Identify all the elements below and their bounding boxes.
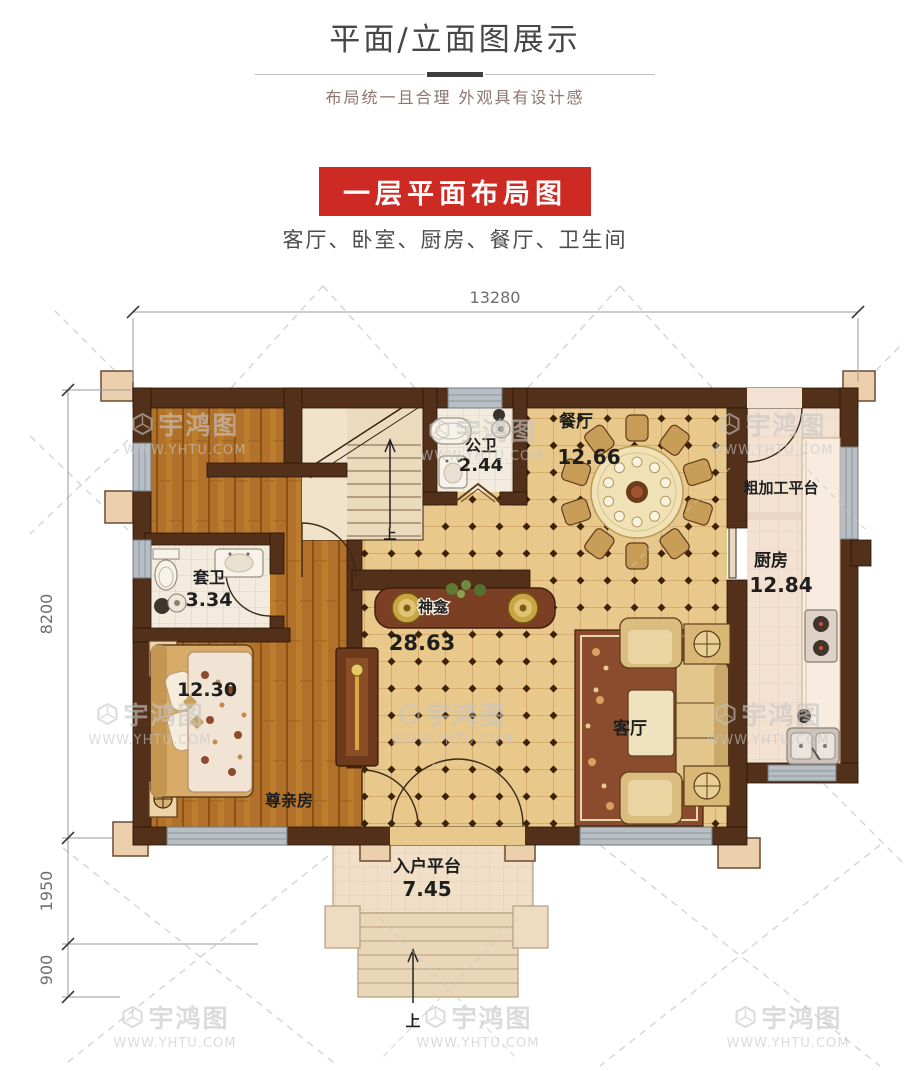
living-room-furniture [575, 618, 730, 826]
area-kitchen: 12.84 [749, 573, 812, 597]
page: 平面/立面图展示 布局统一且合理 外观具有设计感 一层平面布局图 客厅、卧室、厨… [0, 0, 910, 1071]
label-entry-platform: 入户平台 [393, 856, 461, 877]
dim-top-value: 13280 [470, 288, 521, 307]
area-hall: 28.63 [389, 631, 455, 655]
label-rough-platform: 粗加工平台 [743, 479, 818, 497]
window-bedroom-south [167, 827, 287, 845]
area-entry-platform: 7.45 [402, 877, 451, 901]
label-shrine: 神龛 [418, 598, 449, 616]
label-dining: 餐厅 [559, 411, 593, 432]
area-elder-room: 12.30 [177, 679, 237, 701]
window-top [448, 388, 502, 408]
label-entry-up: 上 [405, 1012, 420, 1030]
area-ensuite-bath: 3.34 [186, 589, 233, 611]
label-elder-room: 尊亲房 [265, 791, 313, 810]
dim-left-main: 8200 [37, 594, 56, 635]
dim-left-low: 900 [37, 955, 56, 986]
window-left-2 [133, 540, 151, 578]
label-public-bath: 公卫 [465, 436, 497, 455]
entry-door-gap [390, 827, 525, 845]
label-kitchen: 厨房 [754, 550, 788, 571]
kitchen-top-door-gap [747, 388, 802, 408]
floor-drain [797, 709, 811, 723]
window-left-1 [133, 443, 151, 491]
platform-pillar-left [325, 906, 360, 948]
area-dining: 12.66 [557, 445, 620, 469]
label-living: 客厅 [612, 718, 647, 739]
window-right [840, 447, 858, 539]
label-stair-up: 上 [383, 528, 396, 543]
floor-plan-svg: 13280 8200 1950 900 餐厅 12.66 公卫 2.44 粗加工… [0, 0, 910, 1071]
area-public-bath: 2.44 [459, 455, 503, 476]
dim-left-mid: 1950 [37, 871, 56, 912]
platform-pillar-right [513, 906, 548, 948]
window-kitchen-south [768, 765, 836, 781]
window-living-south [580, 827, 712, 845]
label-ensuite-bath: 套卫 [192, 568, 225, 587]
